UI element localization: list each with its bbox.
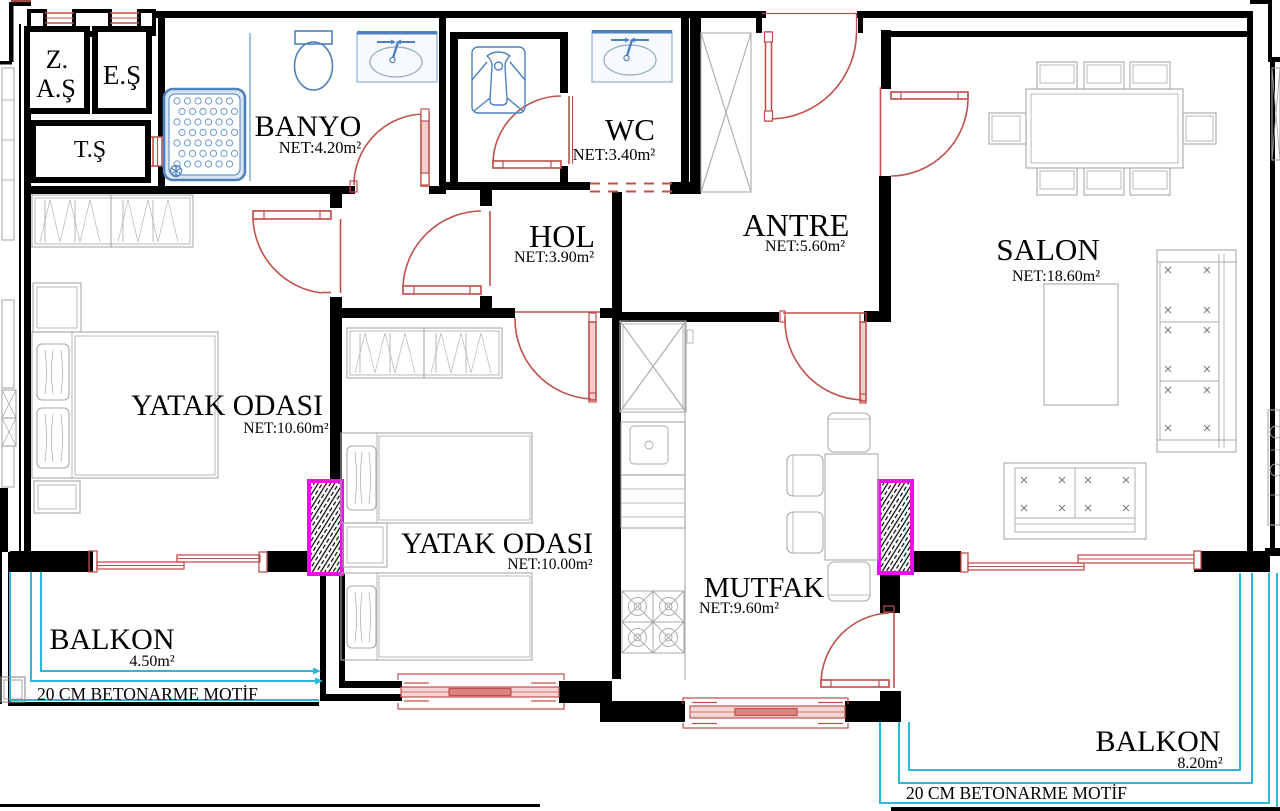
svg-text:NET:5.60m²: NET:5.60m² (765, 238, 845, 255)
svg-text:4.50m²: 4.50m² (129, 653, 174, 670)
svg-text:NET:10.60m²: NET:10.60m² (243, 420, 329, 437)
svg-text:BALKON: BALKON (1096, 725, 1221, 758)
svg-text:8.20m²: 8.20m² (1177, 755, 1222, 772)
svg-text:NET:3.90m²: NET:3.90m² (514, 249, 594, 266)
svg-text:BALKON: BALKON (50, 623, 175, 656)
svg-text:T.Ş: T.Ş (74, 137, 106, 163)
svg-text:E.Ş: E.Ş (103, 60, 141, 90)
svg-text:WC: WC (605, 112, 655, 147)
svg-text:NET:3.40m²: NET:3.40m² (573, 145, 656, 164)
svg-text:NET:4.20m²: NET:4.20m² (279, 138, 362, 157)
svg-text:NET:9.60m²: NET:9.60m² (699, 600, 779, 617)
svg-text:YATAK ODASI: YATAK ODASI (131, 390, 323, 422)
svg-text:20 CM BETONARME MOTİF: 20 CM BETONARME MOTİF (37, 684, 258, 704)
svg-text:20 CM BETONARME MOTİF: 20 CM BETONARME MOTİF (906, 783, 1127, 803)
svg-text:SALON: SALON (996, 232, 1099, 267)
svg-text:NET:10.00m²: NET:10.00m² (507, 556, 593, 573)
svg-text:Z.: Z. (46, 45, 68, 74)
svg-text:A.Ş: A.Ş (36, 74, 76, 103)
svg-text:NET:18.60m²: NET:18.60m² (1012, 268, 1100, 285)
